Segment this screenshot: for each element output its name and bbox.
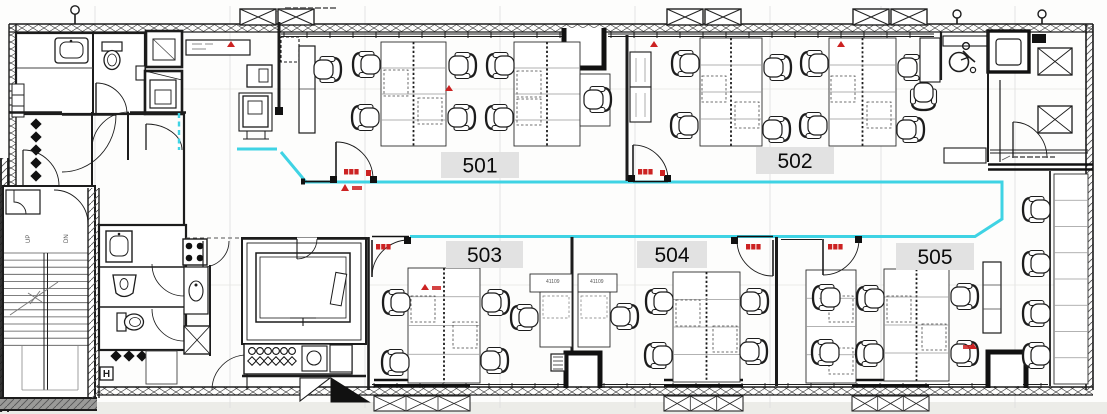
svg-text:501: 501 [462, 155, 497, 178]
svg-text:41109: 41109 [546, 279, 560, 285]
svg-text:502: 502 [777, 150, 812, 173]
svg-text:504: 504 [654, 244, 689, 267]
svg-text:505: 505 [917, 246, 952, 269]
svg-text:503: 503 [467, 244, 502, 267]
svg-text:H: H [103, 369, 110, 380]
svg-text:41109: 41109 [590, 279, 604, 285]
svg-text:DN: DN [64, 234, 70, 243]
svg-text:UP: UP [26, 235, 32, 243]
